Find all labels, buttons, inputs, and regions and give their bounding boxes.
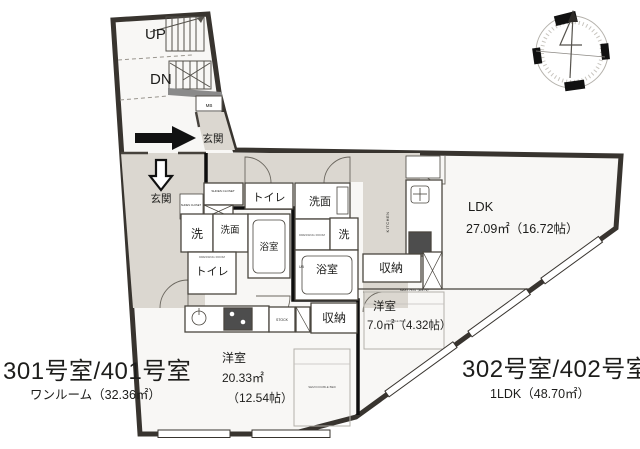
label-301-shoes-closet2: SHOES CLOSET — [181, 203, 202, 207]
meter-box-label: MB — [206, 103, 213, 108]
kitchen-stove — [409, 232, 431, 254]
fridge-space — [406, 156, 440, 178]
label-302-ldk: LDK — [468, 199, 494, 214]
label-301-bed: SEMI DOUBLE BED — [308, 385, 336, 389]
label-301-bath: 浴室 — [259, 241, 278, 253]
label-302-dressing: DRESSING ROOM — [299, 233, 325, 237]
label-301-bedroom-area: 20.33㎡ — [222, 371, 264, 385]
label-302-washer: 洗 — [339, 228, 350, 241]
label-302-kitchen: KITCHEN — [385, 211, 390, 232]
label-302-storage: 収納 — [379, 261, 403, 275]
label-301-washstand: 洗面 — [220, 224, 239, 236]
label-301-entrance: 玄関 — [151, 192, 172, 205]
label-302-ldk-area: 27.09㎡（16.72帖） — [466, 221, 579, 236]
stairs-down-label: DN — [150, 71, 172, 88]
subtitle-unit-302: 1LDK（48.70㎡） — [490, 387, 590, 401]
title-unit-302: 302号室/402号室 — [462, 356, 640, 383]
stairs-up-label: UP — [145, 26, 166, 43]
label-302-bath: 浴室 — [316, 262, 338, 276]
label-301-bedroom-size: （12.54帖） — [227, 390, 293, 405]
label-302-entrance: 玄関 — [203, 132, 224, 145]
label-301-stock: STOCK — [276, 318, 289, 322]
label-301-toilet: トイレ — [196, 266, 229, 278]
shoes-closet-301 — [204, 183, 243, 205]
label-301-bedroom: 洋室 — [222, 350, 246, 365]
label-302-toilet: トイレ — [253, 192, 286, 204]
title-unit-301: 301号室/401号室 — [3, 358, 191, 385]
label-302-bedroom-area: 7.0㎡（4.32帖） — [367, 318, 451, 332]
label-301-dressing: DRESSING ROOM — [199, 255, 225, 259]
label-302-bedroom-dim: MAX7.75×4（W4.72） — [400, 288, 430, 292]
label-301-washer: 洗 — [191, 227, 203, 241]
compass-icon — [532, 10, 610, 91]
floor-plan: UP DN MB — [0, 0, 640, 449]
label-301-shoes-closet: SHOES CLOSET — [211, 189, 235, 193]
subtitle-unit-301: ワンルーム（32.36㎡） — [30, 388, 161, 402]
label-302-bath-ub: UB — [299, 265, 305, 269]
label-302-washstand: 洗面 — [309, 195, 331, 208]
label-302-bed: DOUBLE BED — [386, 319, 406, 323]
kitchenette-stove — [224, 308, 252, 330]
label-302-bedroom: 洋室 — [373, 299, 396, 313]
floor-plan-page: UP DN MB — [0, 0, 640, 449]
label-301-storage: 収納 — [322, 311, 346, 325]
